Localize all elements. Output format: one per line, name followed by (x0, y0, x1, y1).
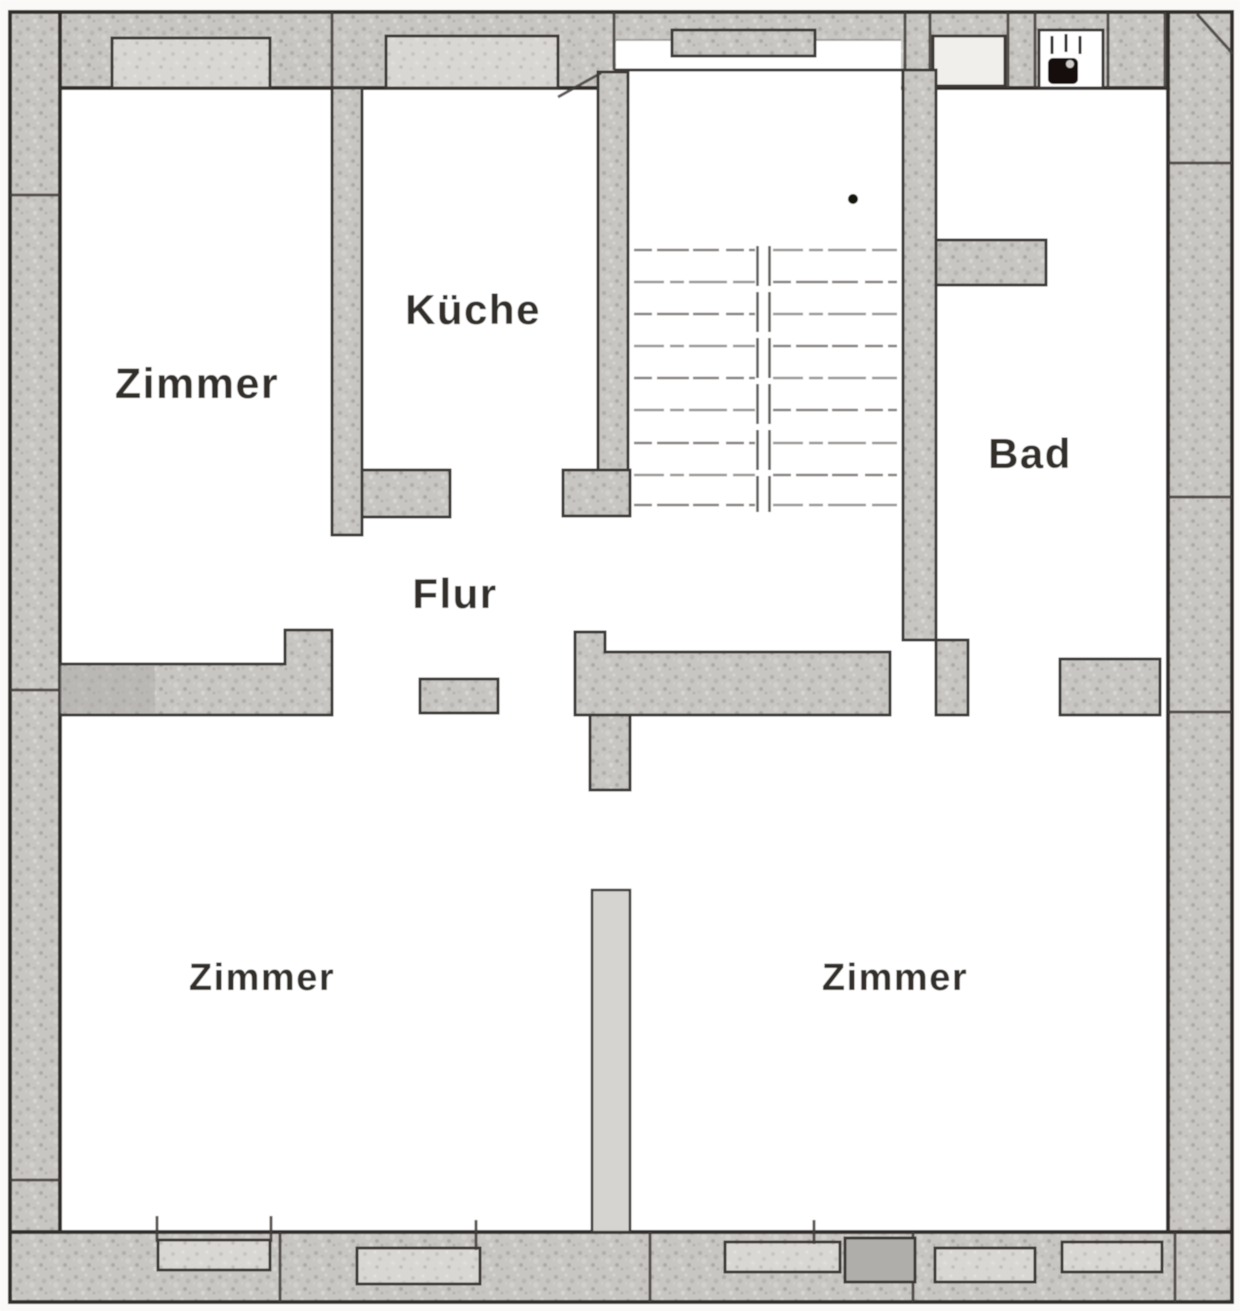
wall-bad-bottom (1060, 659, 1160, 715)
door-stop-stairwell-bottom (936, 640, 968, 715)
exterior-wall-left (10, 12, 60, 1302)
wall-zimmer-kueche (332, 88, 362, 535)
door-stop-kueche-right (563, 470, 630, 516)
floor-plan-scan: Zimmer Küche Flur Bad Zimmer Zimmer (0, 0, 1240, 1311)
room-label-bad: Bad (988, 430, 1072, 477)
wall-divider-bottom-rooms (592, 890, 630, 1232)
stairwell-top-niche (672, 30, 815, 56)
room-label-zimmer-top-left: Zimmer (115, 360, 279, 408)
bad-wall-stub (936, 240, 1046, 285)
floor-plan-image: Zimmer Küche Flur Bad Zimmer Zimmer (0, 0, 1240, 1311)
door-stop-kueche-left (362, 470, 450, 517)
room-label-zimmer-bottom-left: Zimmer (189, 957, 335, 999)
window-kitchen (386, 36, 558, 88)
wall-middle-lintel (420, 679, 498, 713)
window-bottom (158, 1240, 270, 1270)
room-label-flur: Flur (412, 570, 497, 617)
exterior-wall-right (1168, 12, 1232, 1302)
ink-dot (848, 194, 858, 204)
wall-divider-stub (590, 715, 630, 790)
bottom-wall-dark-block (845, 1238, 915, 1282)
room-label-kueche: Küche (405, 286, 541, 333)
window-top-left (112, 38, 270, 88)
wall-stairwell-bad (903, 70, 936, 640)
window-bottom (935, 1248, 1035, 1282)
wall-kueche-stairwell (598, 72, 628, 470)
room-label-zimmer-bottom-right: Zimmer (822, 957, 968, 999)
window-bottom (1062, 1242, 1162, 1272)
bad-wall-niche (933, 36, 1005, 86)
wall-middle-left-shade (60, 666, 155, 713)
window-bottom (725, 1242, 840, 1272)
window-bottom (357, 1248, 480, 1284)
